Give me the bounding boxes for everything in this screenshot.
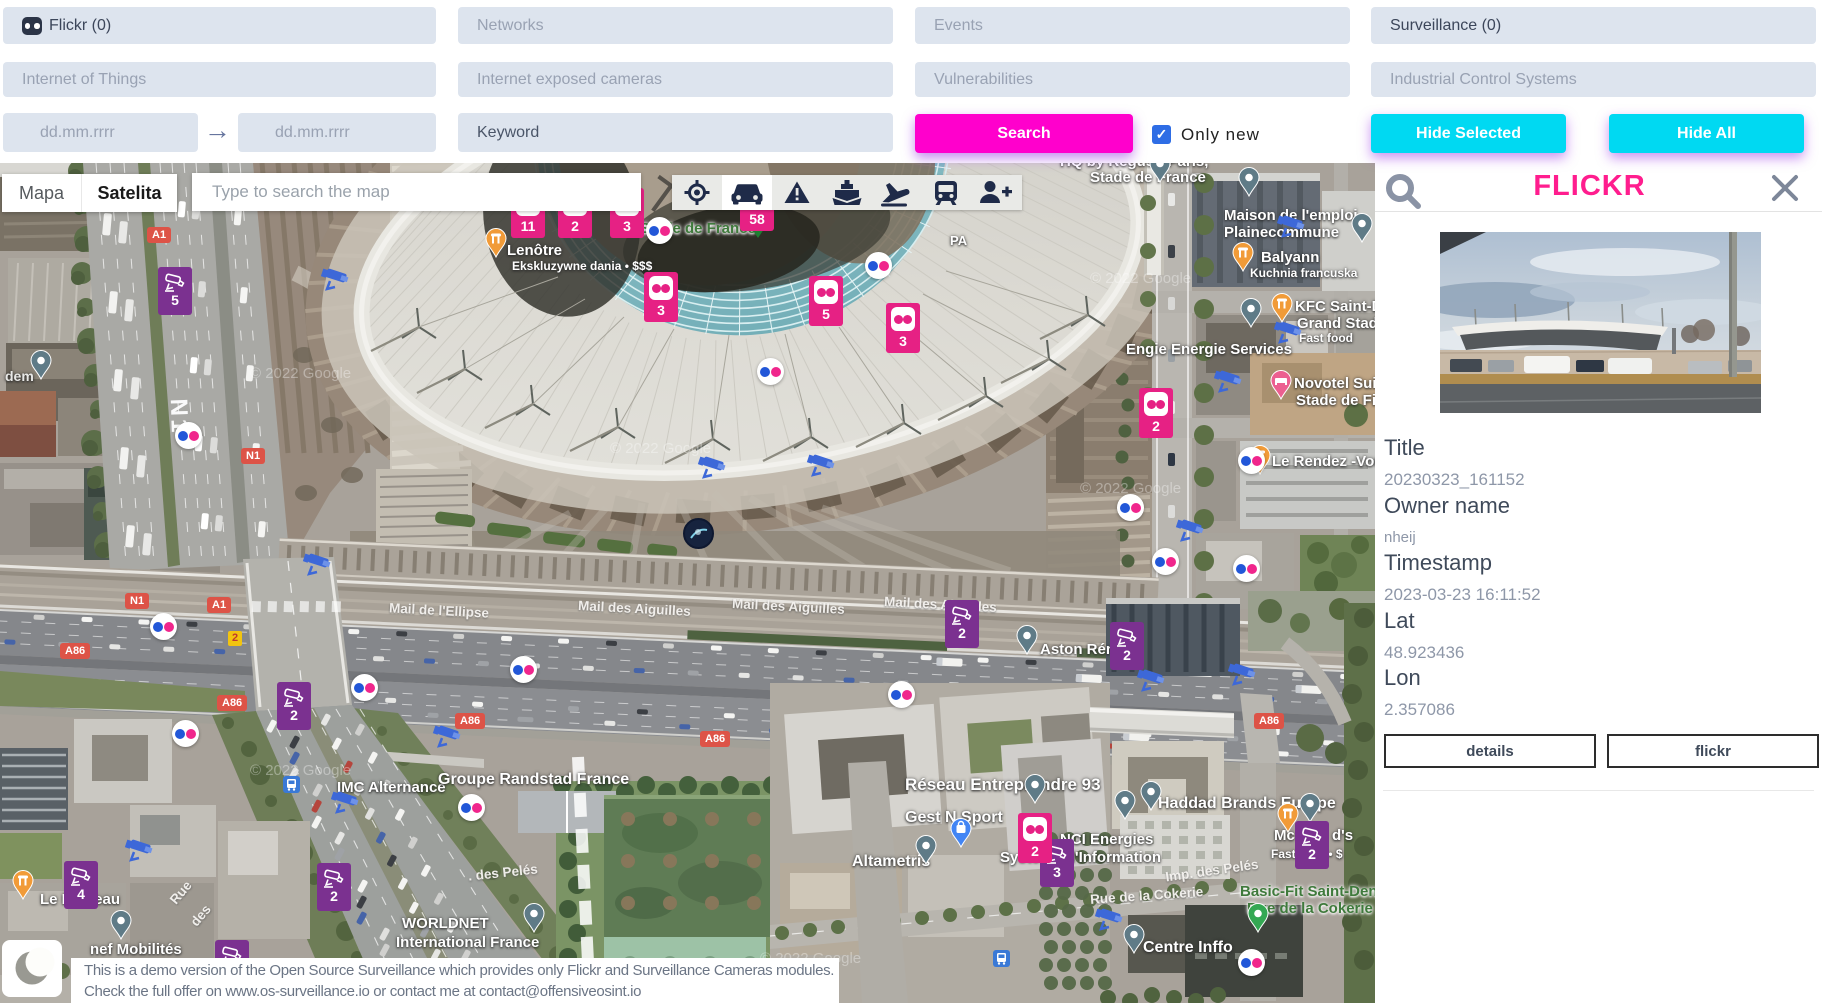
svg-text:© 2022 Google: © 2022 Google: [250, 762, 351, 779]
svg-text:© 2022 Google: © 2022 Google: [250, 365, 351, 382]
svg-text:© 2022 Google: © 2022 Google: [1090, 270, 1191, 287]
svg-text:© 2022 Google: © 2022 Google: [610, 440, 711, 457]
